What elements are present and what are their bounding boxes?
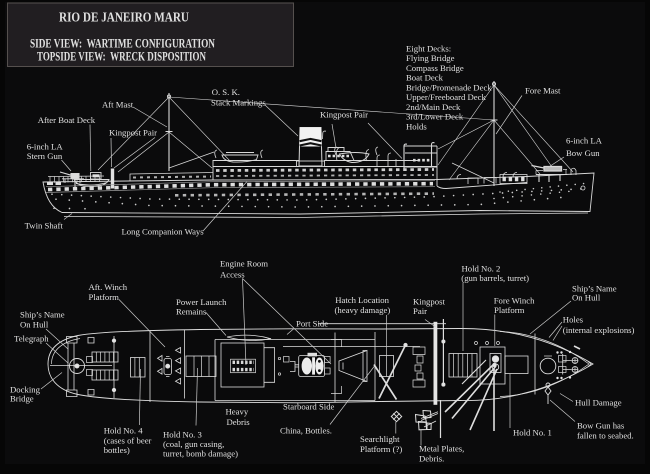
svg-text:Hold No. 1: Hold No. 1 bbox=[513, 428, 552, 438]
svg-text:Bow Gun: Bow Gun bbox=[566, 148, 600, 158]
svg-text:On Hull: On Hull bbox=[20, 320, 49, 330]
svg-text:Holes: Holes bbox=[563, 315, 584, 325]
svg-text:turret, bomb damage): turret, bomb damage) bbox=[163, 449, 238, 459]
svg-text:Remains: Remains bbox=[176, 307, 207, 317]
svg-text:Pair: Pair bbox=[413, 306, 427, 316]
svg-text:Eight Decks:: Eight Decks: bbox=[406, 43, 451, 53]
svg-text:Hull Damage: Hull Damage bbox=[575, 398, 622, 408]
svg-text:Hold No. 3: Hold No. 3 bbox=[163, 429, 202, 439]
svg-text:Hatch Location: Hatch Location bbox=[335, 295, 389, 305]
svg-text:Port Side: Port Side bbox=[296, 319, 328, 329]
svg-text:Debris.: Debris. bbox=[419, 454, 444, 464]
svg-text:Upper/Freeboard Deck: Upper/Freeboard Deck bbox=[406, 92, 486, 102]
svg-text:Heavy: Heavy bbox=[226, 407, 249, 417]
svg-text:6-inch LA: 6-inch LA bbox=[566, 136, 603, 146]
svg-text:China, Bottles.: China, Bottles. bbox=[280, 426, 332, 436]
svg-text:Bridge: Bridge bbox=[10, 394, 34, 404]
svg-text:Flying Bridge: Flying Bridge bbox=[406, 53, 455, 63]
svg-text:Hold No. 4: Hold No. 4 bbox=[104, 426, 144, 436]
svg-text:Platform: Platform bbox=[494, 305, 525, 315]
svg-text:Kingpost: Kingpost bbox=[413, 297, 445, 307]
svg-text:Access: Access bbox=[220, 270, 245, 280]
svg-text:After Boat Deck: After Boat Deck bbox=[38, 115, 96, 125]
svg-text:Aft. Winch: Aft. Winch bbox=[89, 282, 128, 292]
svg-text:TOPSIDE VIEW: WRECK DISPOSITI: TOPSIDE VIEW: WRECK DISPOSITION bbox=[37, 50, 206, 64]
svg-text:Starboard Side: Starboard Side bbox=[283, 401, 335, 411]
svg-text:Kingpost Pair: Kingpost Pair bbox=[320, 110, 368, 120]
svg-text:Platform (?): Platform (?) bbox=[360, 444, 402, 454]
svg-text:SIDE VIEW: WARTIME CONFIGURAT: SIDE VIEW: WARTIME CONFIGURATION bbox=[30, 37, 215, 51]
svg-text:Hold No. 2: Hold No. 2 bbox=[462, 263, 501, 273]
svg-text:Metal Plates,: Metal Plates, bbox=[419, 444, 464, 454]
svg-text:Fore Mast: Fore Mast bbox=[525, 86, 561, 96]
svg-text:3rd/Lower Deck: 3rd/Lower Deck bbox=[406, 112, 464, 122]
svg-text:Boat Deck: Boat Deck bbox=[406, 73, 444, 83]
svg-text:Platform: Platform bbox=[89, 292, 120, 302]
svg-text:Twin Shaft: Twin Shaft bbox=[25, 220, 64, 230]
svg-text:Aft Mast: Aft Mast bbox=[102, 100, 134, 110]
svg-text:(cases of beer: (cases of beer bbox=[104, 436, 152, 446]
svg-text:fallen to seabed.: fallen to seabed. bbox=[577, 431, 634, 441]
svg-text:Compass Bridge: Compass Bridge bbox=[406, 63, 464, 73]
svg-text:Fore Winch: Fore Winch bbox=[494, 295, 535, 305]
svg-text:On Hull: On Hull bbox=[572, 293, 601, 303]
svg-text:(coal, gun casing,: (coal, gun casing, bbox=[163, 439, 224, 449]
svg-text:Stern Gun: Stern Gun bbox=[27, 151, 63, 161]
svg-text:2nd/Main Deck: 2nd/Main Deck bbox=[406, 102, 461, 112]
svg-text:(internal explosions): (internal explosions) bbox=[563, 325, 635, 335]
svg-text:Ship’s Name: Ship’s Name bbox=[20, 310, 65, 320]
svg-text:Stack Markings: Stack Markings bbox=[211, 97, 266, 107]
svg-text:(gun barrels, turret): (gun barrels, turret) bbox=[461, 273, 529, 283]
svg-text:Kingpost Pair: Kingpost Pair bbox=[109, 128, 157, 138]
svg-text:Bow Gun has: Bow Gun has bbox=[577, 421, 625, 431]
svg-text:Bridge/Promenade Deck: Bridge/Promenade Deck bbox=[406, 82, 492, 92]
svg-text:bottles): bottles) bbox=[104, 445, 130, 455]
svg-text:Searchlight: Searchlight bbox=[360, 434, 400, 444]
svg-text:Debris: Debris bbox=[227, 417, 251, 427]
svg-text:O. S. K.: O. S. K. bbox=[212, 87, 240, 97]
svg-text:Telegraph: Telegraph bbox=[14, 334, 49, 344]
svg-text:Engine Room: Engine Room bbox=[220, 259, 268, 269]
svg-text:6-inch LA: 6-inch LA bbox=[27, 141, 64, 151]
svg-text:Holds: Holds bbox=[406, 122, 427, 132]
svg-text:Long Companion Ways: Long Companion Ways bbox=[122, 226, 205, 236]
svg-text:Power Launch: Power Launch bbox=[176, 297, 227, 307]
svg-text:(heavy damage): (heavy damage) bbox=[335, 305, 391, 315]
svg-text:RIO DE JANEIRO MARU: RIO DE JANEIRO MARU bbox=[59, 11, 189, 26]
